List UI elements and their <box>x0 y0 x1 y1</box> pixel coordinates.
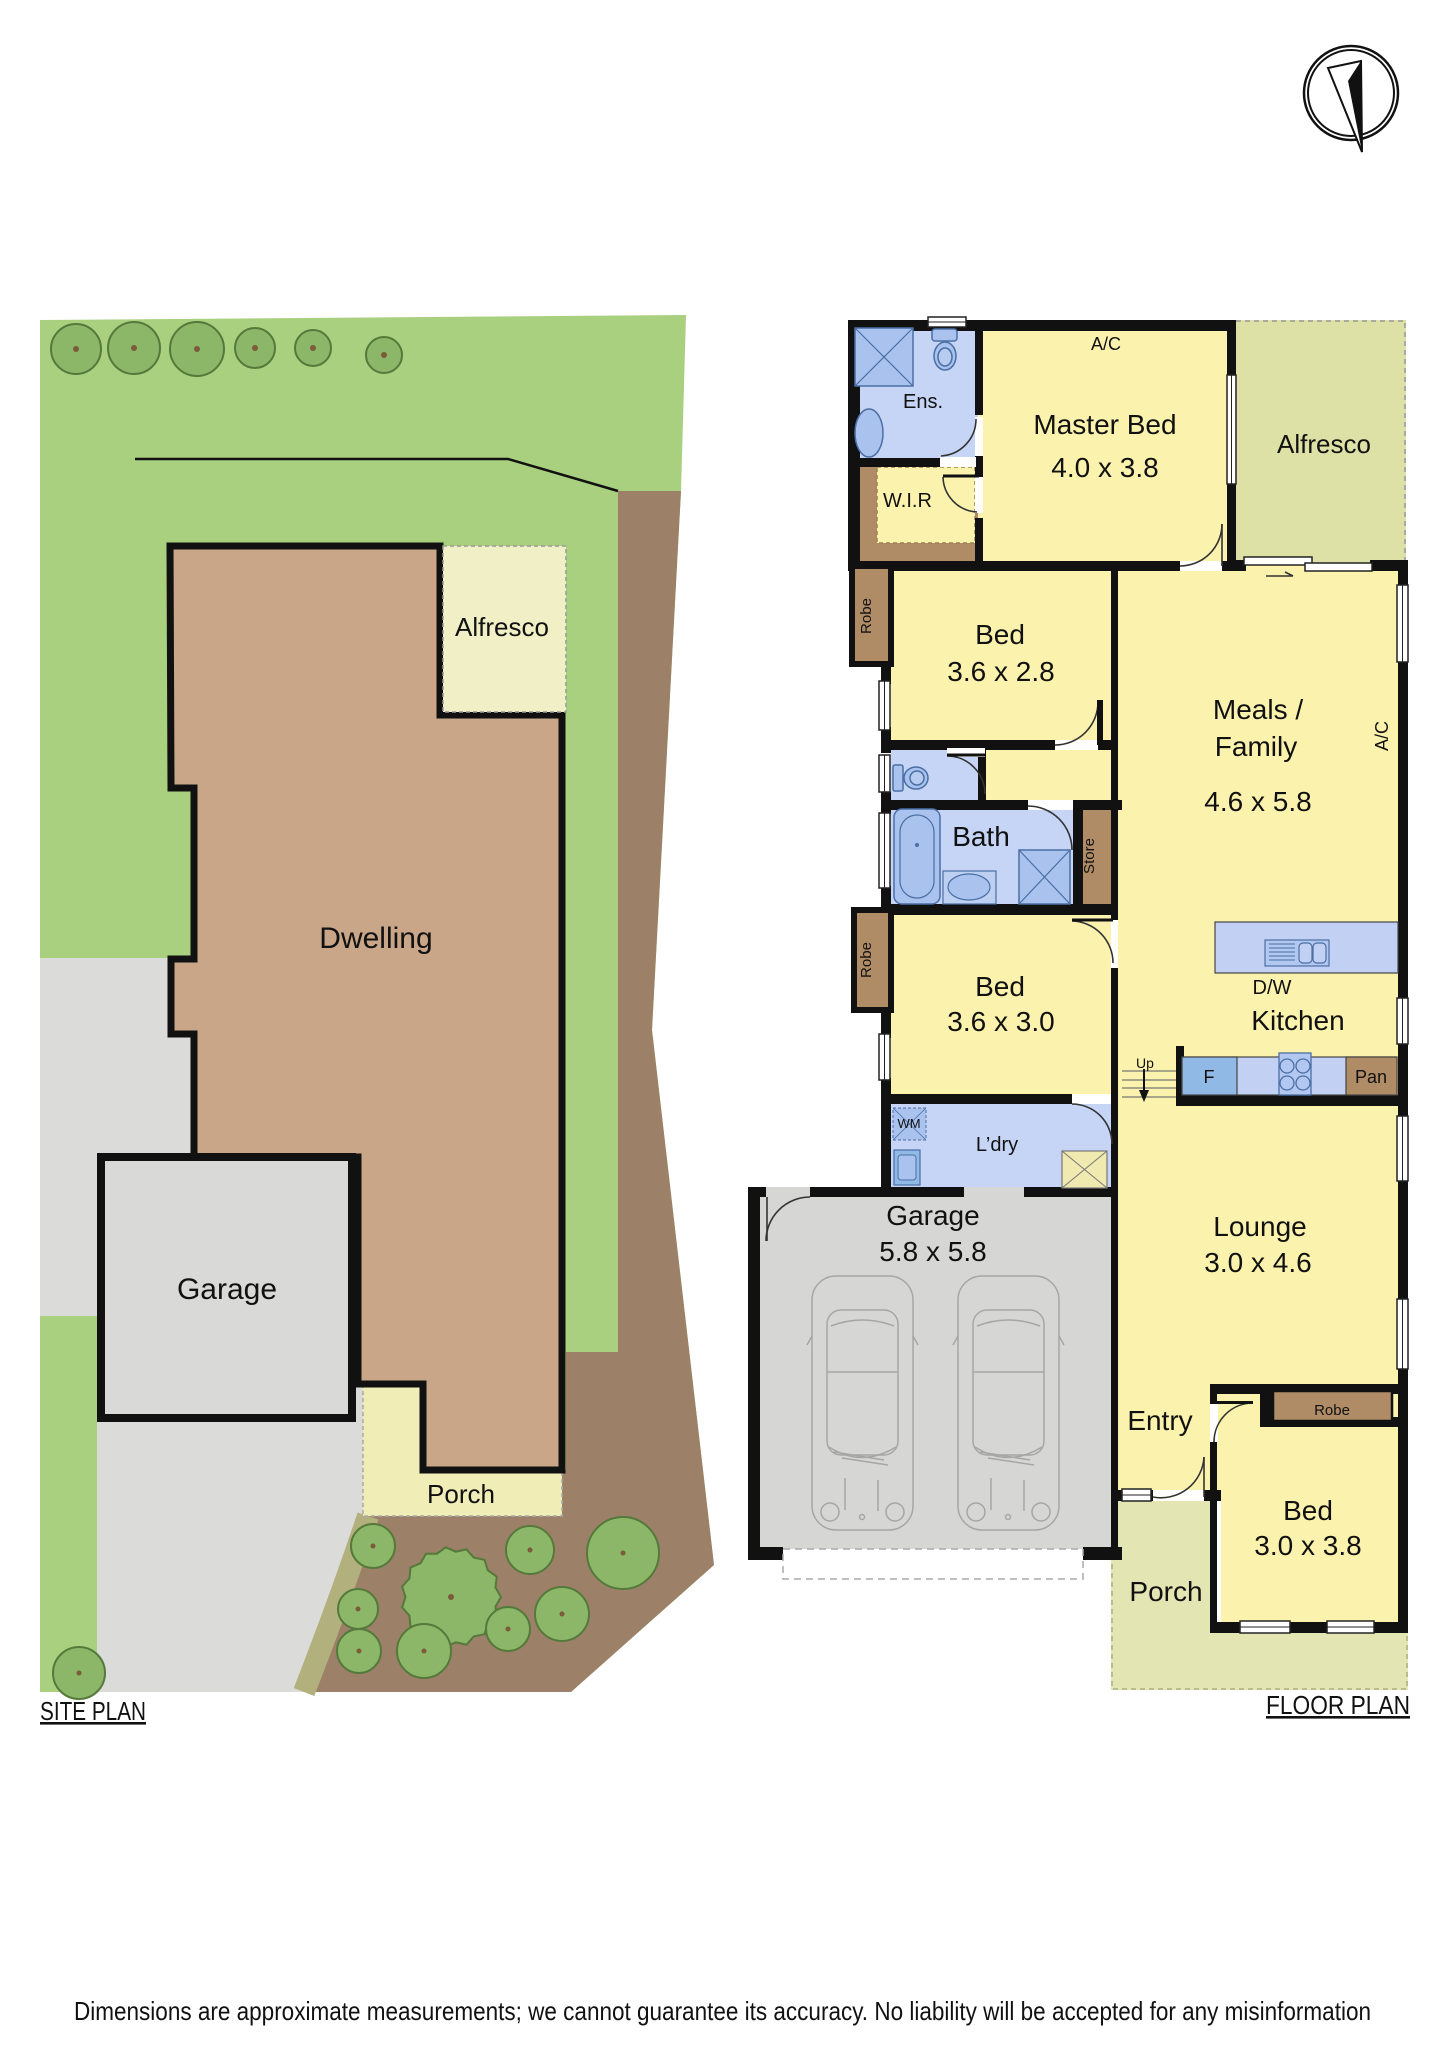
svg-text:A/C: A/C <box>1091 334 1121 354</box>
svg-text:Bed: Bed <box>975 971 1025 1002</box>
svg-text:Pan: Pan <box>1355 1067 1387 1087</box>
svg-text:Garage: Garage <box>886 1200 979 1231</box>
svg-text:Meals /: Meals / <box>1213 694 1303 725</box>
svg-text:Alfresco: Alfresco <box>455 612 549 642</box>
svg-text:Store: Store <box>1081 838 1098 874</box>
svg-text:Robe: Robe <box>858 942 875 978</box>
svg-text:Family: Family <box>1215 731 1297 762</box>
svg-text:Bath: Bath <box>952 821 1010 852</box>
svg-text:Bed: Bed <box>1283 1495 1333 1526</box>
svg-text:D/W: D/W <box>1253 977 1292 999</box>
svg-text:3.0 x 3.8: 3.0 x 3.8 <box>1254 1530 1361 1561</box>
svg-text:Entry: Entry <box>1127 1405 1192 1436</box>
svg-text:Porch: Porch <box>1129 1576 1202 1607</box>
svg-text:Bed: Bed <box>975 619 1025 650</box>
svg-text:WM: WM <box>897 1116 920 1131</box>
svg-text:Master Bed: Master Bed <box>1033 409 1176 440</box>
svg-text:A/C: A/C <box>1372 721 1392 751</box>
svg-text:Porch: Porch <box>427 1479 495 1509</box>
svg-text:F: F <box>1204 1067 1215 1087</box>
svg-text:Up: Up <box>1136 1055 1154 1071</box>
svg-text:3.6 x 3.0: 3.6 x 3.0 <box>947 1006 1054 1037</box>
svg-text:Kitchen: Kitchen <box>1251 1005 1344 1036</box>
svg-text:SITE PLAN: SITE PLAN <box>40 1696 146 1726</box>
svg-text:3.0 x 4.6: 3.0 x 4.6 <box>1204 1247 1311 1278</box>
svg-text:5.8 x 5.8: 5.8 x 5.8 <box>879 1236 986 1267</box>
svg-text:L’dry: L’dry <box>976 1134 1018 1156</box>
svg-text:FLOOR PLAN: FLOOR PLAN <box>1266 1690 1410 1720</box>
svg-text:Garage: Garage <box>177 1273 277 1306</box>
svg-text:Dwelling: Dwelling <box>319 922 432 955</box>
svg-text:Robe: Robe <box>858 598 875 634</box>
svg-text:Dimensions are approximate mea: Dimensions are approximate measurements;… <box>74 1996 1371 2026</box>
svg-text:Alfresco: Alfresco <box>1277 429 1371 459</box>
svg-text:W.I.R: W.I.R <box>883 490 932 512</box>
svg-text:4.0 x 3.8: 4.0 x 3.8 <box>1051 452 1158 483</box>
svg-text:Lounge: Lounge <box>1213 1211 1306 1242</box>
svg-text:3.6 x 2.8: 3.6 x 2.8 <box>947 656 1054 687</box>
svg-text:4.6 x 5.8: 4.6 x 5.8 <box>1204 786 1311 817</box>
svg-text:Ens.: Ens. <box>903 391 943 413</box>
svg-text:Robe: Robe <box>1314 1402 1350 1419</box>
